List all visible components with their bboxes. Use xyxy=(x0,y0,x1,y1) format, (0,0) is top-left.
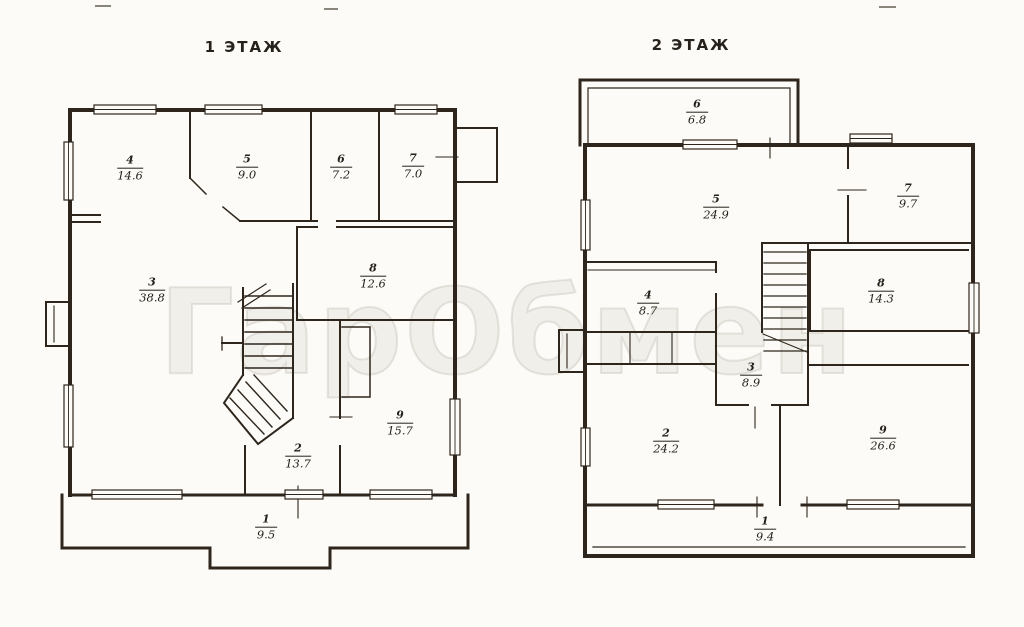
floor2-door-ticks xyxy=(630,138,866,517)
room-label: 5 24.9 xyxy=(703,194,729,221)
room-label: 3 8.9 xyxy=(740,362,762,389)
room-number: 1 xyxy=(255,514,277,528)
room-number: 5 xyxy=(703,194,729,208)
room-area: 9.5 xyxy=(255,527,277,540)
room-label: 3 38.8 xyxy=(139,277,165,304)
room-area: 6.8 xyxy=(686,112,708,125)
floor2-plan xyxy=(559,80,979,556)
room-number: 2 xyxy=(653,428,679,442)
room-number: 3 xyxy=(740,362,762,376)
room-number: 1 xyxy=(754,516,776,530)
room-area: 38.8 xyxy=(139,290,165,303)
room-number: 5 xyxy=(236,154,258,168)
floor1-bay-window xyxy=(46,302,70,346)
room-area: 9.4 xyxy=(754,529,776,542)
room-number: 4 xyxy=(117,155,143,169)
room-number: 9 xyxy=(870,425,896,439)
room-area: 12.6 xyxy=(360,276,386,289)
room-number: 8 xyxy=(868,278,894,292)
room-area: 7.2 xyxy=(330,167,352,180)
room-label: 7 7.0 xyxy=(402,153,424,180)
room-label: 9 15.7 xyxy=(387,410,413,437)
floor1-plan xyxy=(46,105,497,568)
floor2-bay-window xyxy=(559,330,585,372)
room-number: 2 xyxy=(285,443,311,457)
room-number: 8 xyxy=(360,263,386,277)
floorplan-page: ГарОбмен xyxy=(0,0,1024,627)
room-label: 8 12.6 xyxy=(360,263,386,290)
room-label: 1 9.5 xyxy=(255,514,277,541)
room-number: 6 xyxy=(330,154,352,168)
room-label: 6 7.2 xyxy=(330,154,352,181)
floorplan-drawing xyxy=(0,0,1024,627)
floor2-title: 2 ЭТАЖ xyxy=(652,36,731,54)
room-label: 7 9.7 xyxy=(897,183,919,210)
floor1-title: 1 ЭТАЖ xyxy=(205,38,284,56)
room-number: 6 xyxy=(686,99,708,113)
room-area: 14.6 xyxy=(117,168,143,181)
room-label: 1 9.4 xyxy=(754,516,776,543)
room-area: 24.9 xyxy=(703,207,729,220)
room-area: 8.9 xyxy=(740,375,762,388)
room-number: 7 xyxy=(402,153,424,167)
floor2-terrace-walls xyxy=(585,505,973,547)
floor2-stairs xyxy=(762,243,808,405)
room-label: 4 14.6 xyxy=(117,155,143,182)
room-area: 14.3 xyxy=(868,291,894,304)
room-area: 26.6 xyxy=(870,438,896,451)
room-label: 2 24.2 xyxy=(653,428,679,455)
floor1-balcony xyxy=(455,128,497,182)
room-label: 6 6.8 xyxy=(686,99,708,126)
room-label: 4 8.7 xyxy=(637,290,659,317)
floor1-stairs xyxy=(222,284,293,444)
room-area: 8.7 xyxy=(637,303,659,316)
room-area: 13.7 xyxy=(285,456,311,469)
room-number: 9 xyxy=(387,410,413,424)
room-area: 9.7 xyxy=(897,196,919,209)
room-label: 8 14.3 xyxy=(868,278,894,305)
room-number: 3 xyxy=(139,277,165,291)
room-number: 4 xyxy=(637,290,659,304)
room-area: 15.7 xyxy=(387,423,413,436)
room-label: 2 13.7 xyxy=(285,443,311,470)
room-label: 9 26.6 xyxy=(870,425,896,452)
room-area: 7.0 xyxy=(402,166,424,179)
scan-artifacts xyxy=(96,6,895,9)
room-area: 9.0 xyxy=(236,167,258,180)
room-number: 7 xyxy=(897,183,919,197)
room-label: 5 9.0 xyxy=(236,154,258,181)
room-area: 24.2 xyxy=(653,441,679,454)
floor1-door-leaves xyxy=(190,178,240,221)
